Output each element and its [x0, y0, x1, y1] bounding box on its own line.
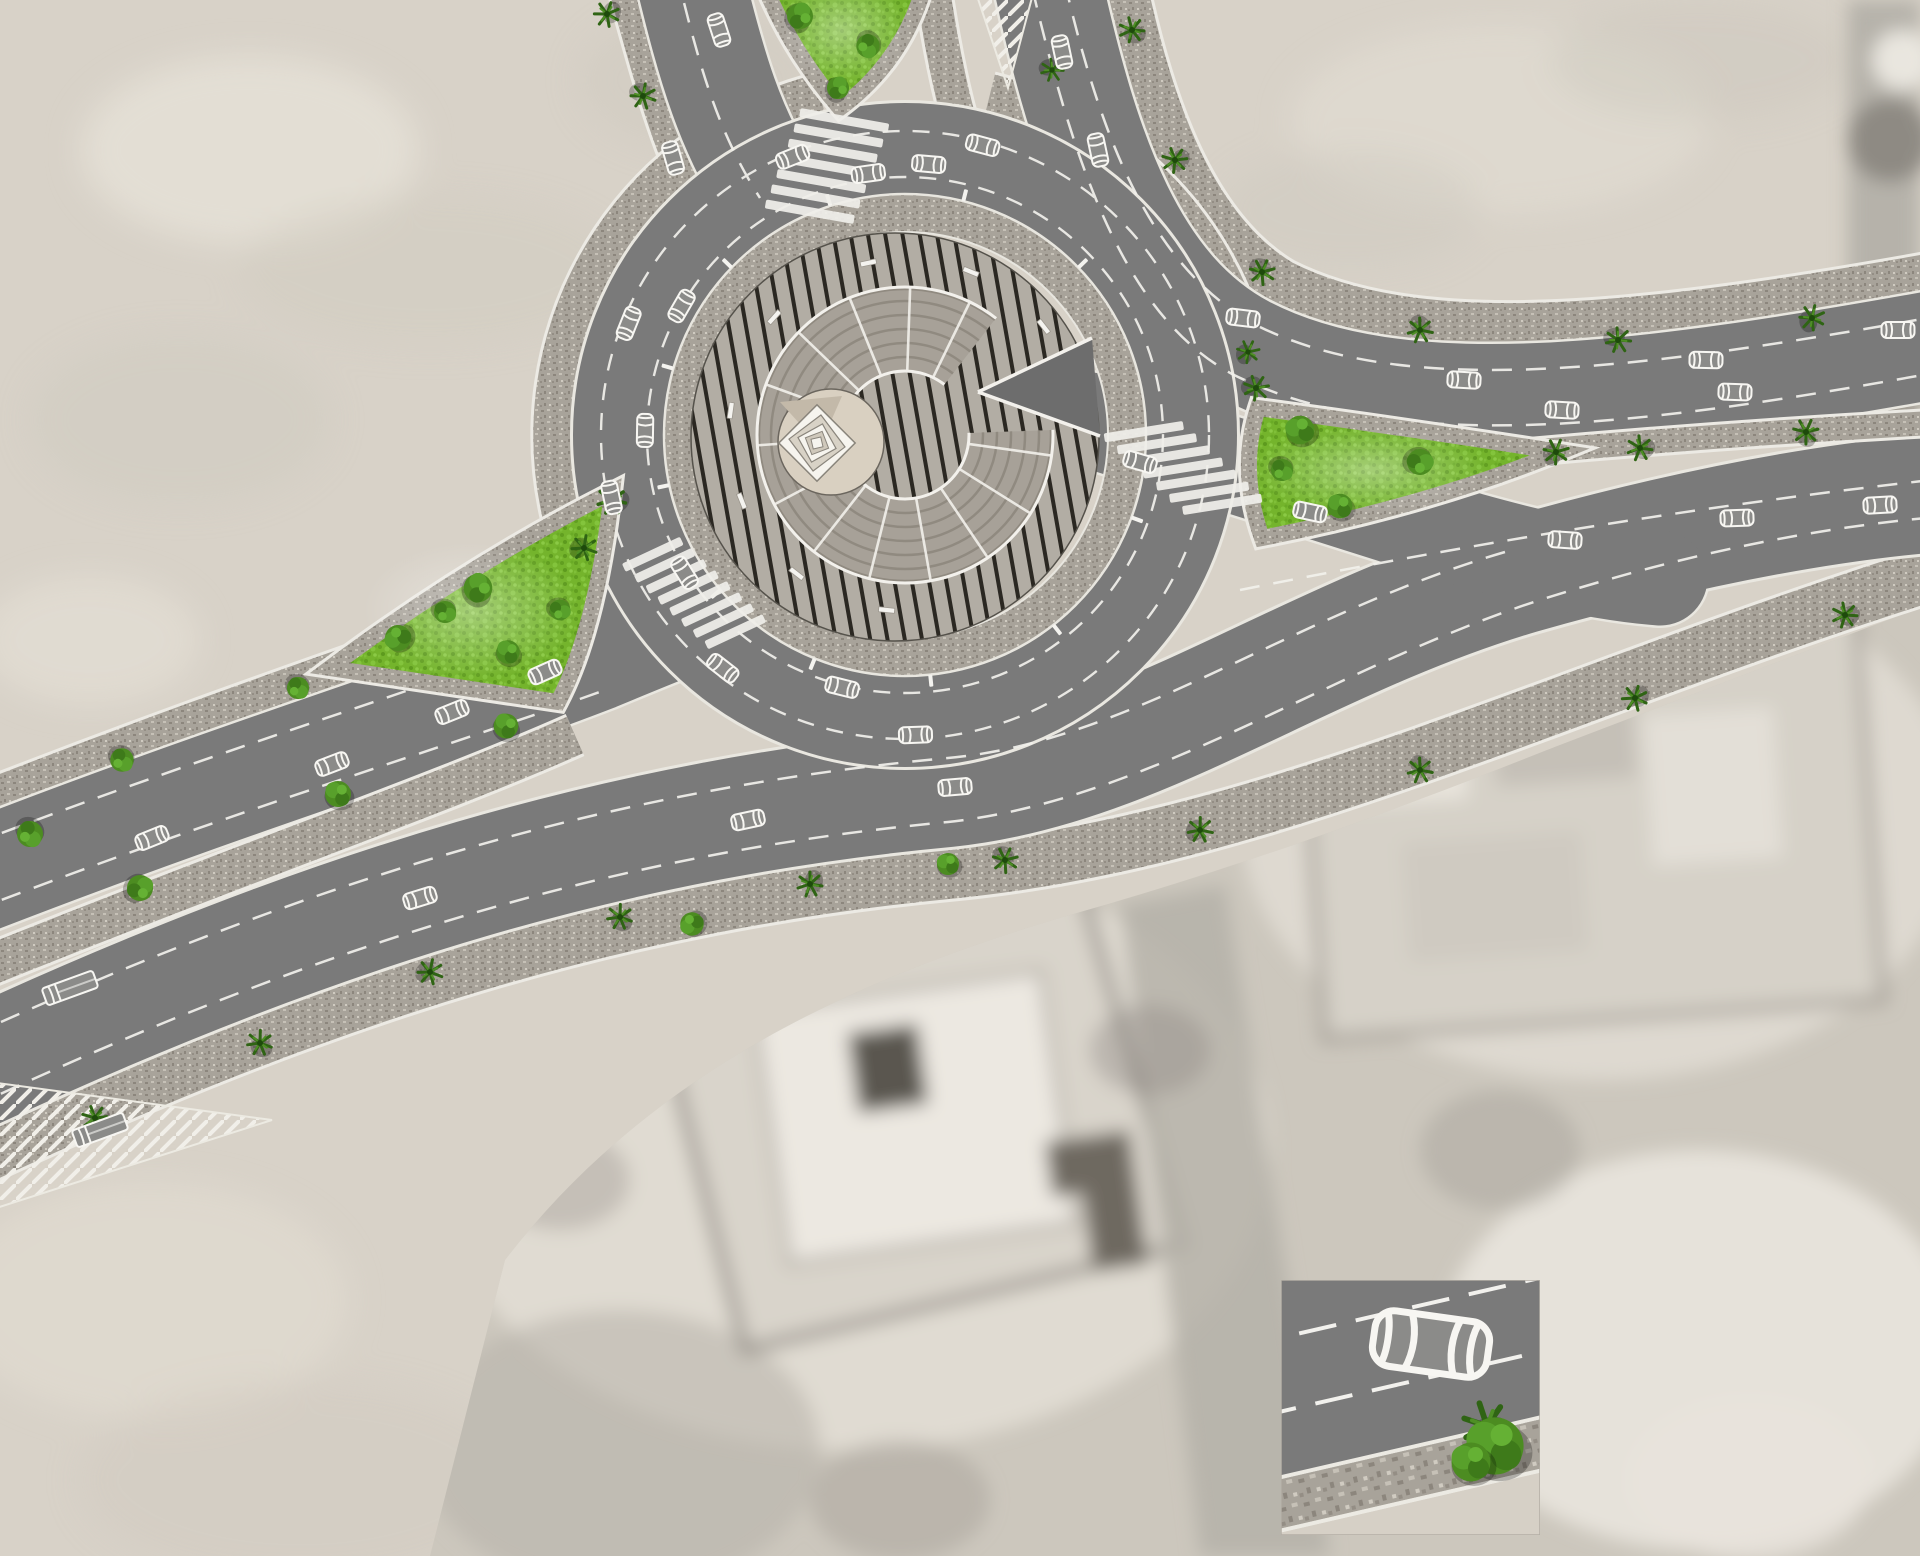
car — [1226, 308, 1261, 328]
car — [938, 778, 972, 797]
car — [1863, 496, 1897, 514]
car-on-ring — [637, 414, 654, 447]
car-on-ring — [912, 155, 946, 174]
car — [1447, 371, 1481, 389]
car-on-ring — [851, 163, 886, 183]
car — [1689, 352, 1722, 369]
car-on-ring — [899, 726, 933, 743]
car — [1548, 531, 1582, 549]
car — [1718, 383, 1752, 400]
inset-detail-car — [1370, 1308, 1492, 1380]
aerial-plan-screenshot — [0, 0, 1920, 1556]
inset-car — [1370, 1308, 1492, 1380]
car — [1545, 401, 1579, 419]
car — [1720, 509, 1754, 526]
car — [1882, 322, 1915, 338]
site-plan-canvas — [0, 0, 1920, 1556]
central-plaza — [778, 389, 884, 495]
